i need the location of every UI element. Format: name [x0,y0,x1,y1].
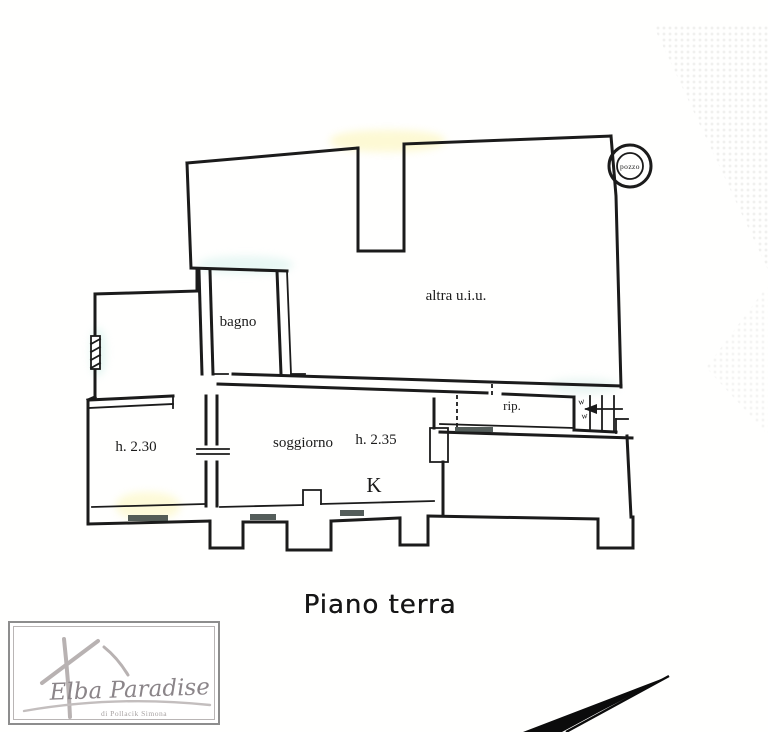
scanned-floorplan-page: w w pozzo bagno altra u.i.u. h. 2.30 sog… [0,0,768,732]
stairs: w w [574,396,628,433]
agency-logo: Elba Paradise di Pollacik Simona [8,621,220,725]
room-label-altra-uiu: altra u.i.u. [426,288,487,304]
dividing-wall [197,396,229,506]
room-label-rip: rip. [503,398,521,413]
window-marker [128,515,168,521]
room-label-bagno: bagno [220,314,257,330]
logo-title: Elba Paradise [48,674,210,706]
window-marker [250,514,276,520]
logo-subtitle: di Pollacik Simona [101,709,167,718]
kitchen-walls [430,399,448,516]
room-label-h235: h. 2.35 [355,432,396,448]
room-label-soggiorno: soggiorno [273,435,333,451]
stair-mark: w [577,396,585,407]
plan-caption: Piano terra [295,590,465,620]
inner-walls [92,490,434,507]
outer-walls [88,136,621,524]
window-marker [455,427,493,432]
well-pozzo: pozzo [609,145,651,187]
corridor-walls [88,374,621,408]
room-label-pozzo: pozzo [620,162,640,171]
room-label-kitchen: K [366,473,381,497]
logo-art: Elba Paradise di Pollacik Simona [14,627,218,721]
bottom-outer-walls [88,436,633,550]
logo-frame: Elba Paradise di Pollacik Simona [13,626,215,720]
room-label-h230: h. 2.30 [115,439,156,455]
north-arrow-icon [523,676,669,732]
stair-mark: w [581,410,589,421]
window-marker [340,510,364,516]
